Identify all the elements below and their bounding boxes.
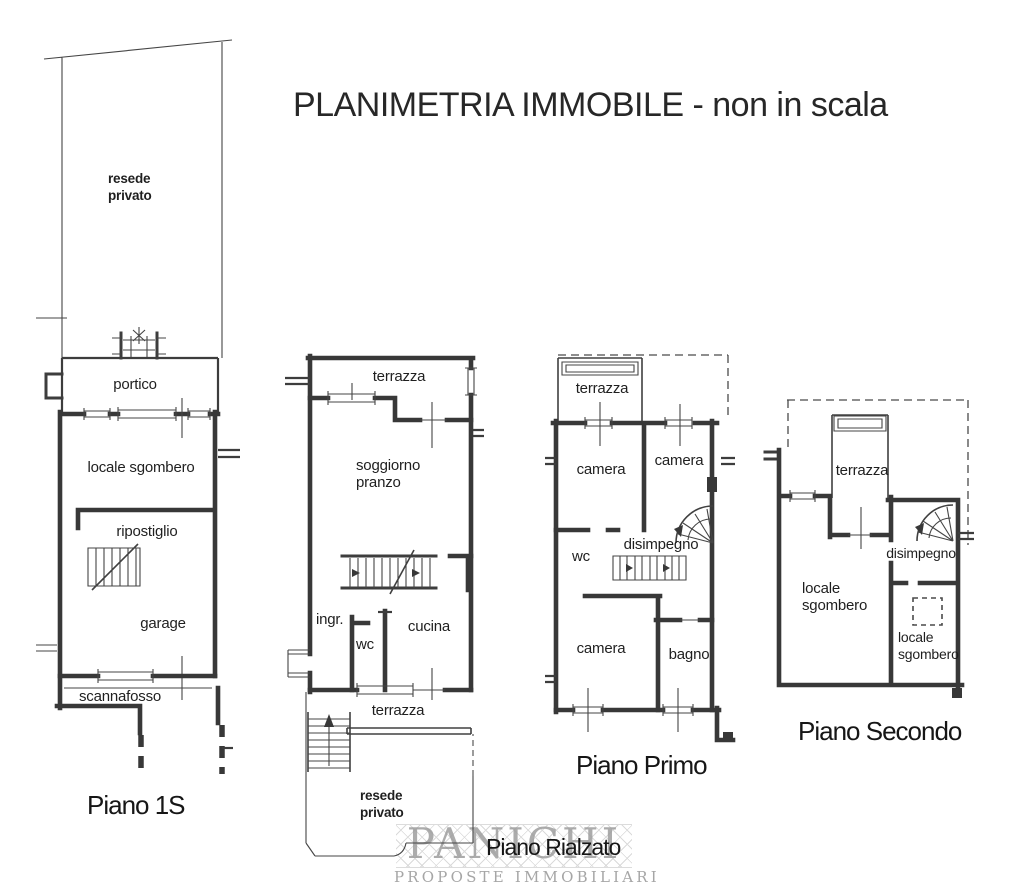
plot-boundary bbox=[36, 40, 232, 651]
gate-symbol bbox=[112, 327, 166, 358]
floor-label-piano-secondo: Piano Secondo bbox=[798, 716, 961, 747]
room-label-cucina: cucina bbox=[408, 618, 450, 635]
exterior-stairs-symbol bbox=[308, 712, 350, 772]
room-label-ripostiglio: ripostiglio bbox=[116, 523, 177, 540]
room-label-terrazza-nord: terrazza bbox=[373, 368, 426, 385]
floorplan-linework bbox=[0, 0, 1024, 882]
floor-label-piano-1s: Piano 1S bbox=[87, 790, 185, 821]
room-label-bagno: bagno bbox=[669, 646, 710, 663]
skylight-symbol bbox=[562, 362, 638, 375]
page-title: PLANIMETRIA IMMOBILE - non in scala bbox=[293, 86, 888, 125]
room-label-disimpegno-secondo: disimpegno bbox=[886, 545, 956, 562]
floor-label-piano-rialzato: Piano Rialzato bbox=[486, 834, 620, 861]
room-label-garage: garage bbox=[140, 615, 186, 632]
floorplan-sheet: PLANIMETRIA IMMOBILE - non in scala PANI… bbox=[0, 0, 1024, 882]
skylight-symbol bbox=[834, 416, 886, 431]
room-label-terrazza-secondo: terrazza bbox=[836, 462, 889, 479]
room-label-wc-rialzato: wc bbox=[356, 636, 374, 653]
room-label-ingresso: ingr. bbox=[316, 611, 343, 628]
room-label-scannafosso: scannafosso bbox=[79, 688, 161, 705]
floor-opening-dashed bbox=[913, 598, 942, 625]
room-label-locale-sgombero-ovest: locale sgombero bbox=[802, 580, 867, 614]
staircase-symbol bbox=[342, 550, 471, 594]
staircase-symbol bbox=[88, 544, 140, 590]
room-label-disimpegno-primo: disimpegno bbox=[624, 536, 699, 553]
room-label-resede-privato-rialzato: resede privato bbox=[360, 787, 404, 821]
staircase-symbol bbox=[613, 556, 686, 580]
room-label-terrazza-sud: terrazza bbox=[372, 702, 425, 719]
room-label-camera-nord-est: camera bbox=[655, 452, 704, 469]
piano-1s-plan bbox=[36, 40, 240, 774]
room-label-locale-sgombero-1s: locale sgombero bbox=[87, 459, 194, 476]
room-label-terrazza-primo: terrazza bbox=[576, 380, 629, 397]
room-label-camera-sud: camera bbox=[577, 640, 626, 657]
room-label-soggiorno-pranzo: soggiorno pranzo bbox=[356, 457, 420, 491]
window-symbols bbox=[84, 407, 210, 421]
piano-rialzato-plan bbox=[285, 356, 484, 856]
room-label-camera-nord-ovest: camera bbox=[577, 461, 626, 478]
room-label-portico: portico bbox=[113, 376, 157, 393]
room-label-resede-privato-1s: resede privato bbox=[108, 170, 152, 204]
spiral-staircase-symbol bbox=[915, 505, 953, 541]
room-label-locale-sgombero-est: locale sgombero bbox=[898, 629, 959, 663]
floor-label-piano-primo: Piano Primo bbox=[576, 750, 707, 781]
room-label-wc-primo: wc bbox=[572, 548, 590, 565]
